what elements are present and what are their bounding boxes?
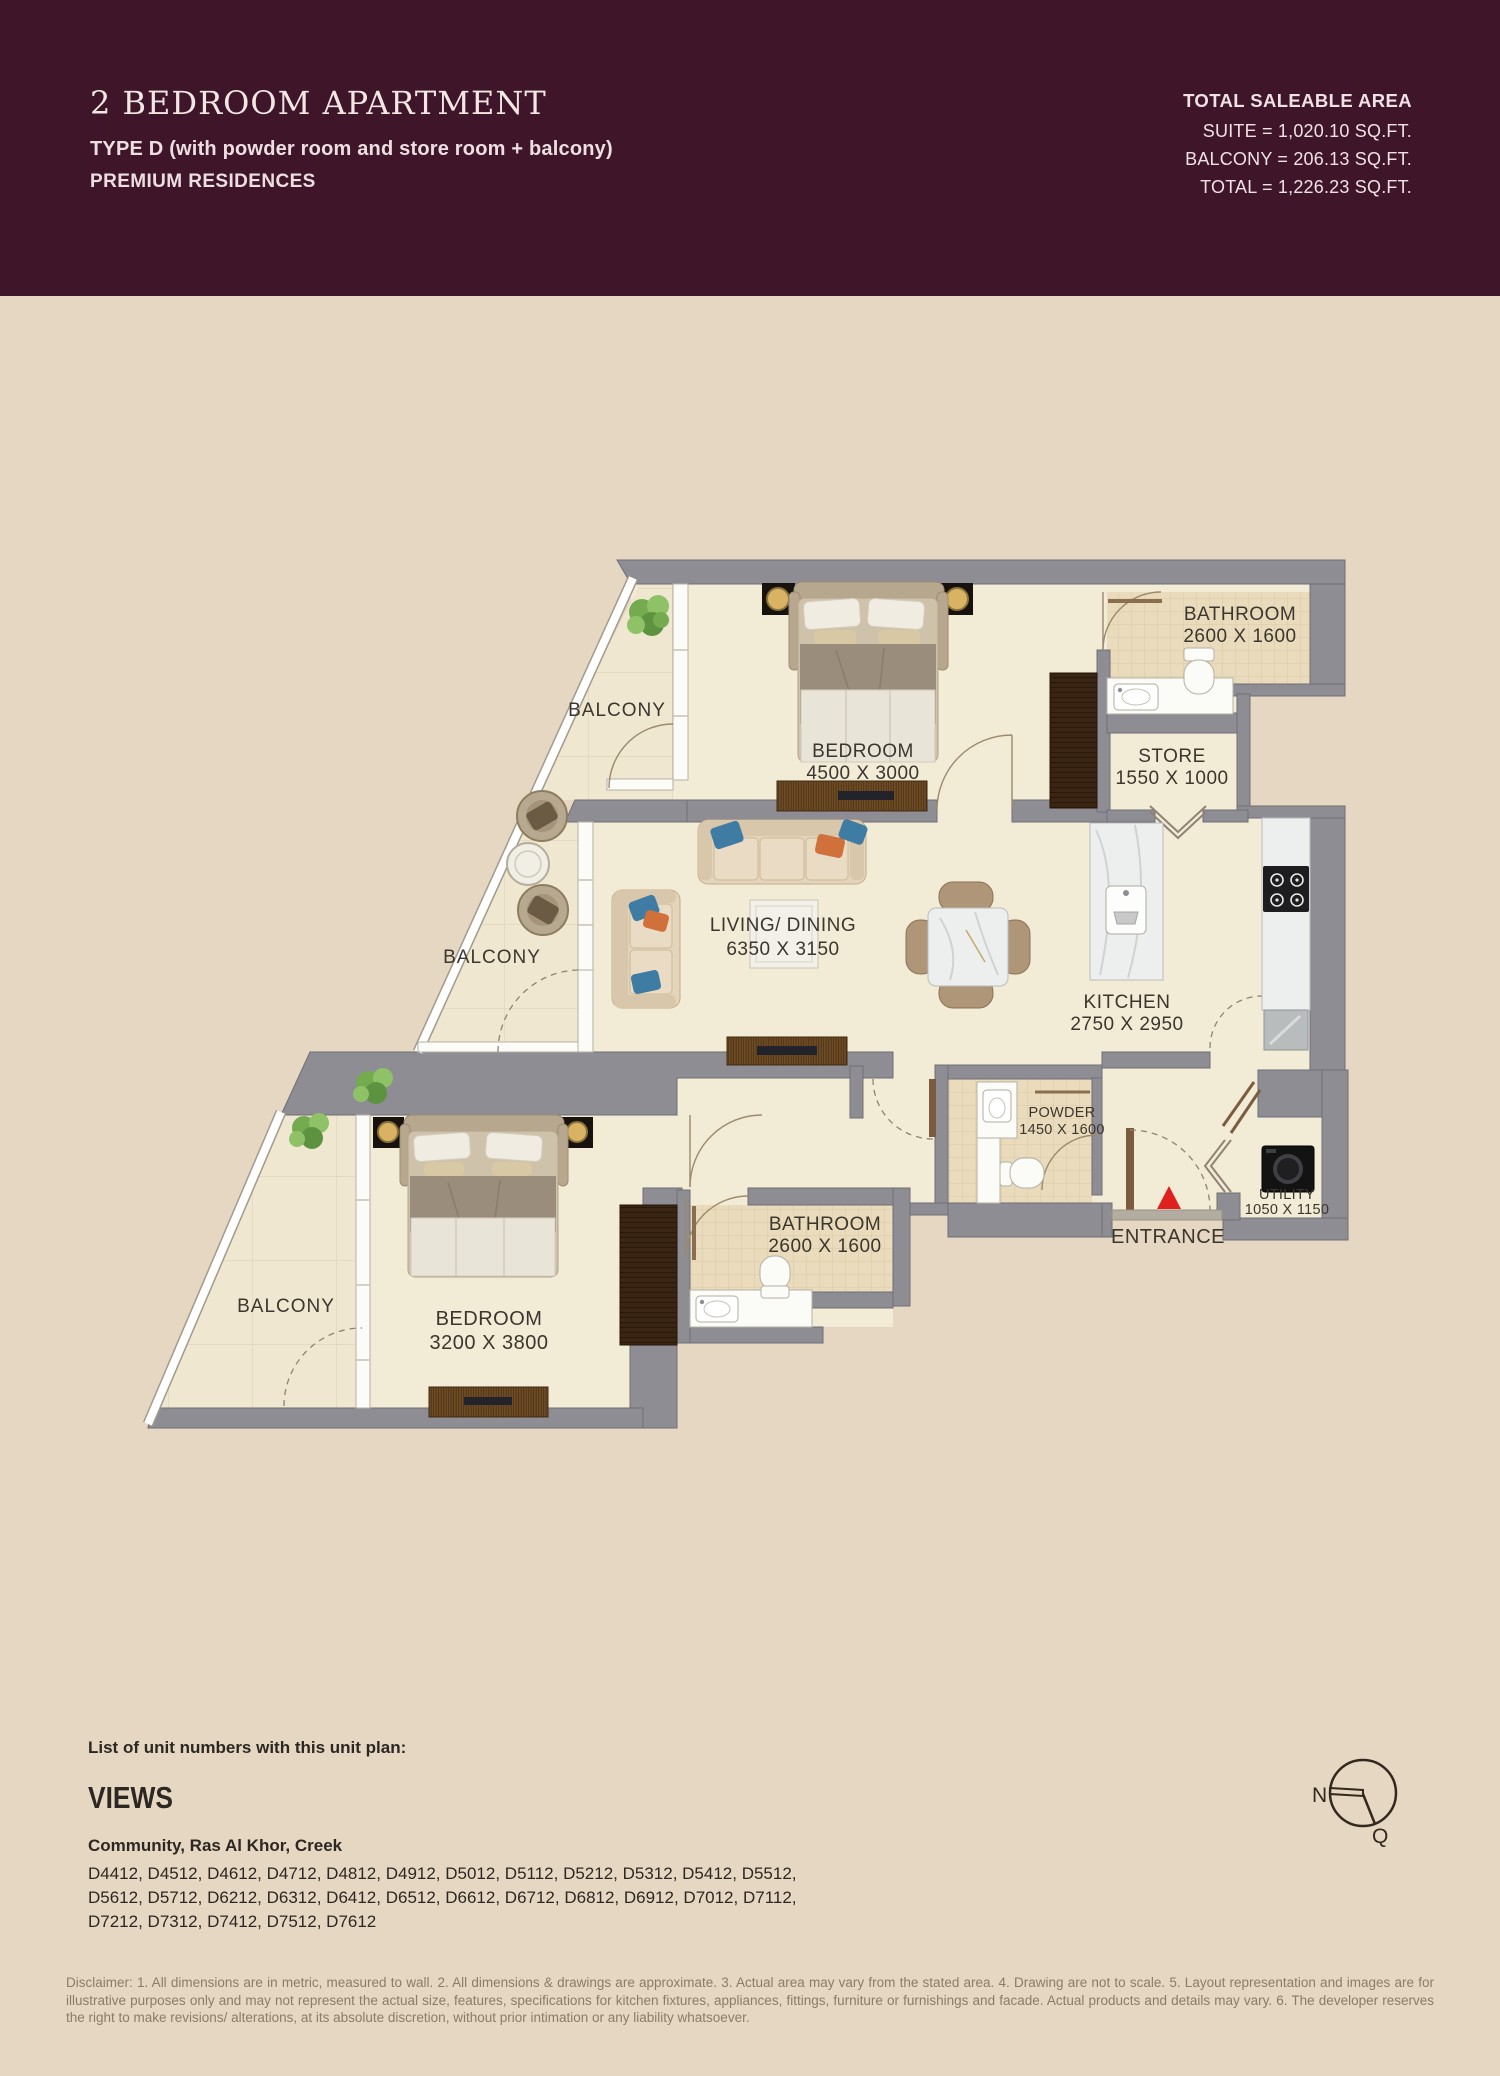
utility-dims: 1050 X 1150 (1245, 1202, 1329, 1218)
unit-numbers-line-2: D5612, D5712, D6212, D6312, D6412, D6512… (88, 1886, 797, 1910)
living-dining-dims: 6350 X 3150 (726, 939, 839, 960)
balcony-3-label: BALCONY (237, 1296, 335, 1317)
store-label: STORE (1138, 746, 1206, 767)
saleable-area-block: TOTAL SALEABLE AREA SUITE = 1,020.10 SQ.… (1183, 90, 1412, 198)
stove-icon (1263, 866, 1309, 912)
window-wall-living (578, 822, 593, 970)
sofa-side (612, 890, 680, 1008)
living-dining-label: LIVING/ DINING (710, 915, 856, 936)
balcony-1-door (607, 779, 673, 790)
balcony-3-floor (152, 1115, 356, 1408)
toilet-1 (1184, 648, 1214, 661)
hall-door-leaf (929, 1079, 936, 1137)
unit-numbers-line-1: D4412, D4512, D4612, D4712, D4812, D4912… (88, 1862, 797, 1886)
tv-console-bedroom-1 (777, 781, 927, 811)
dresser-bedroom-2 (429, 1387, 548, 1417)
bedroom-2-label: BEDROOM (436, 1308, 543, 1330)
toilet-2 (760, 1256, 790, 1290)
washing-machine-icon (1262, 1146, 1314, 1192)
area-heading: TOTAL SALEABLE AREA (1183, 90, 1412, 112)
bathroom-2-label: BATHROOM (769, 1214, 881, 1235)
bedroom-1-dims: 4500 X 3000 (806, 763, 919, 784)
window-wall-bedroom-1 (673, 584, 688, 780)
brochure-page: 2 BEDROOM APARTMENT TYPE D (with powder … (0, 0, 1500, 2076)
bathroom-1-dims: 2600 X 1600 (1183, 626, 1296, 647)
wardrobe-2 (620, 1205, 677, 1345)
bedroom-1-label: BEDROOM (812, 741, 914, 762)
kitchen-counter (1262, 818, 1310, 1050)
area-suite: SUITE = 1,020.10 SQ.FT. (1183, 121, 1412, 142)
store-dims: 1550 X 1000 (1115, 768, 1228, 789)
unit-numbers-line-3: D7212, D7312, D7412, D7512, D7612 (88, 1910, 797, 1934)
balcony-2-label: BALCONY (443, 947, 541, 968)
powder-dims: 1450 X 1600 (1019, 1122, 1105, 1138)
entrance-label: ENTRANCE (1111, 1226, 1225, 1248)
window-wall-bedroom-2 (356, 1115, 370, 1408)
wardrobe-1 (1050, 673, 1097, 808)
disclaimer: Disclaimer: 1. All dimensions are in met… (66, 1974, 1434, 2027)
unit-numbers: D4412, D4512, D4612, D4712, D4812, D4912… (88, 1862, 797, 1934)
bathroom-2-dims: 2600 X 1600 (768, 1236, 881, 1257)
tv-console-living (727, 1037, 847, 1065)
unit-type-subtitle: TYPE D (with powder room and store room … (90, 138, 613, 161)
powder-label: POWDER (1028, 1105, 1095, 1121)
unit-list-heading: List of unit numbers with this unit plan… (88, 1738, 406, 1758)
bedroom-2-dims: 3200 X 3800 (430, 1332, 549, 1354)
compass-q: Q (1372, 1825, 1388, 1848)
compass-n: N (1312, 1784, 1327, 1807)
floor-plan: BALCONY BALCONY BALCONY BEDROOM 4500 X 3… (0, 380, 1500, 1580)
bathroom-1-label: BATHROOM (1184, 604, 1296, 625)
page-title: 2 BEDROOM APARTMENT (90, 84, 547, 122)
compass-icon: N Q (1290, 1750, 1420, 1860)
area-balcony: BALCONY = 206.13 SQ.FT. (1183, 149, 1412, 170)
balcony-1-label: BALCONY (568, 700, 666, 721)
kitchen-dims: 2750 X 2950 (1070, 1014, 1183, 1035)
header-band: 2 BEDROOM APARTMENT TYPE D (with powder … (0, 0, 1500, 296)
utility-label: UTILITY (1259, 1187, 1315, 1203)
views-location: Community, Ras Al Khor, Creek (88, 1836, 342, 1856)
kitchen-island (1090, 823, 1163, 980)
views-title: VIEWS (88, 1780, 173, 1816)
balcony-2-floor (418, 822, 578, 1052)
kitchen-label: KITCHEN (1084, 992, 1171, 1013)
sofa-long (698, 818, 869, 884)
entrance-threshold (1112, 1210, 1222, 1220)
residences-subtitle: PREMIUM RESIDENCES (90, 171, 316, 193)
entrance-door-leaf (1126, 1128, 1134, 1210)
area-total: TOTAL = 1,226.23 SQ.FT. (1183, 177, 1412, 198)
